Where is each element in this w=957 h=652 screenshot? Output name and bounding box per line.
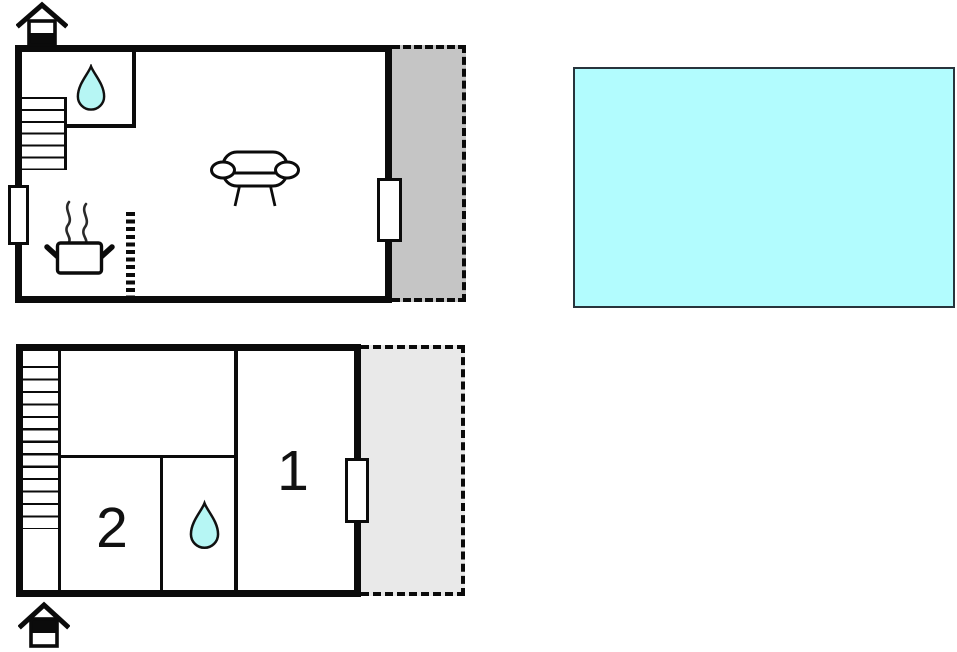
bathroom-wall-horizontal (65, 124, 136, 128)
house-entrance-icon-bottom (18, 600, 70, 649)
staircase-icon (22, 97, 64, 170)
staircase-wall (58, 351, 61, 590)
room2-bathroom-wall (160, 455, 163, 590)
floorplan-canvas: 1 2 (0, 0, 957, 652)
balcony-area (361, 345, 465, 596)
water-drop-icon (189, 498, 220, 553)
room1-label: 1 (268, 436, 318, 506)
room1-wall-vertical (234, 351, 238, 590)
window-marker-right (377, 178, 402, 242)
terrace-area (392, 45, 466, 302)
window-marker-left (8, 185, 29, 245)
staircase-icon (23, 366, 58, 529)
sofa-icon (210, 148, 300, 210)
swimming-pool (573, 67, 955, 308)
kitchen-divider-dashed-wall (126, 212, 135, 296)
window-marker-room1 (345, 458, 369, 523)
house-entrance-icon-top (16, 1, 68, 47)
room2-label: 2 (87, 493, 137, 563)
cooking-pot-icon (43, 199, 115, 277)
bathroom-wall-vertical (132, 50, 136, 128)
staircase-edge (64, 97, 67, 170)
water-drop-icon (76, 64, 106, 112)
hall-wall-horizontal (58, 455, 238, 458)
